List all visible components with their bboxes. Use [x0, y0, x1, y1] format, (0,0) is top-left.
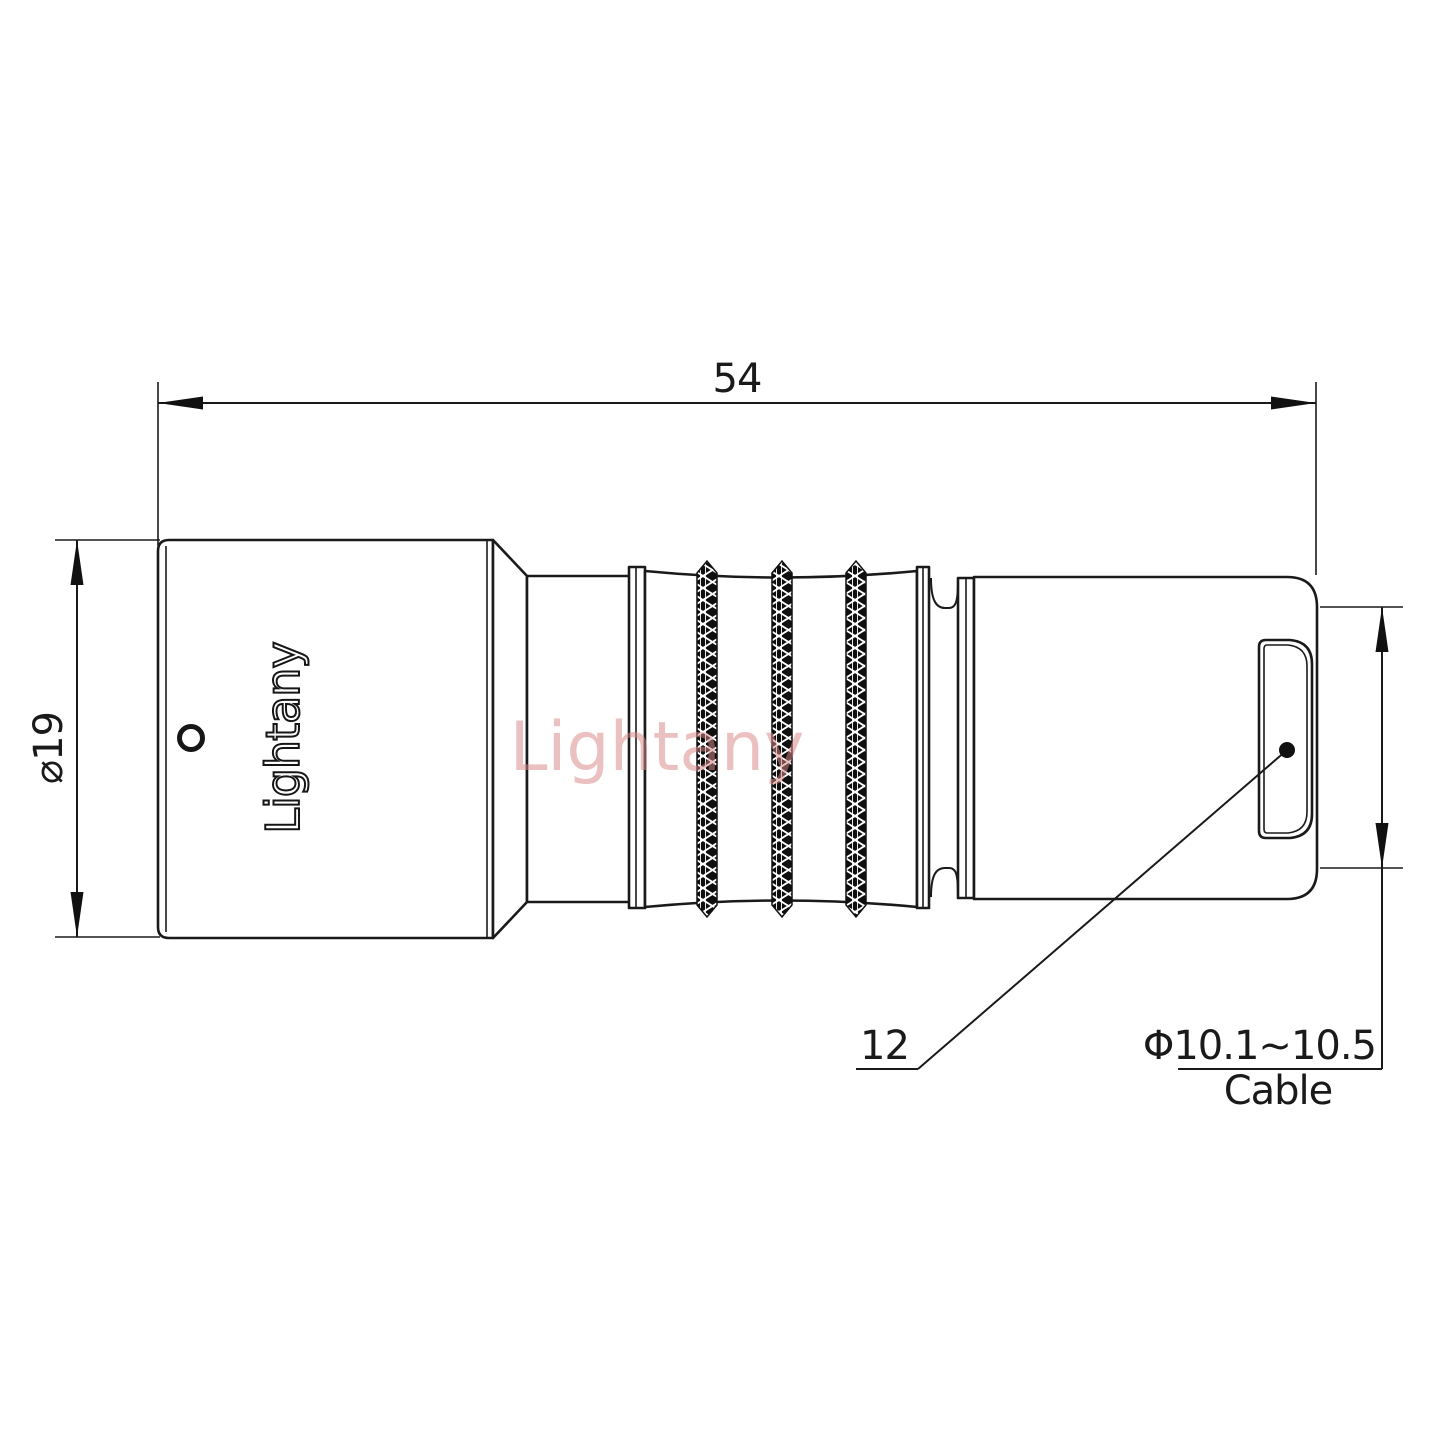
nut-size-label: 12	[860, 1023, 909, 1069]
rear-neck	[931, 578, 974, 898]
locating-hole	[180, 727, 203, 750]
leader-dot	[1279, 742, 1295, 758]
arrow-up-icon	[71, 540, 84, 585]
front-shell: Lightany	[158, 540, 493, 938]
cable-word-label: Cable	[1224, 1068, 1333, 1114]
dim-diameter-19-label: ⌀19	[26, 712, 72, 784]
arrow-down-icon	[1376, 823, 1389, 868]
arrow-down-icon	[71, 892, 84, 937]
knurl-band	[846, 561, 866, 917]
arrow-right-icon	[1271, 397, 1316, 410]
knurl-flange-right	[917, 567, 929, 908]
brand-engraving: Lightany	[256, 642, 310, 833]
technical-drawing-canvas: Lightany	[0, 0, 1440, 1440]
dimension-body-diameter: ⌀19	[26, 540, 160, 937]
dim-54-label: 54	[713, 356, 762, 402]
watermark-text: Lightany	[510, 708, 805, 787]
arrow-left-icon	[158, 397, 203, 410]
cable-diameter-label: Φ10.1~10.5	[1143, 1023, 1376, 1069]
connector-drawing: Lightany	[0, 0, 1440, 1440]
arrow-up-icon	[1376, 607, 1389, 652]
cable-recess	[1259, 640, 1312, 838]
